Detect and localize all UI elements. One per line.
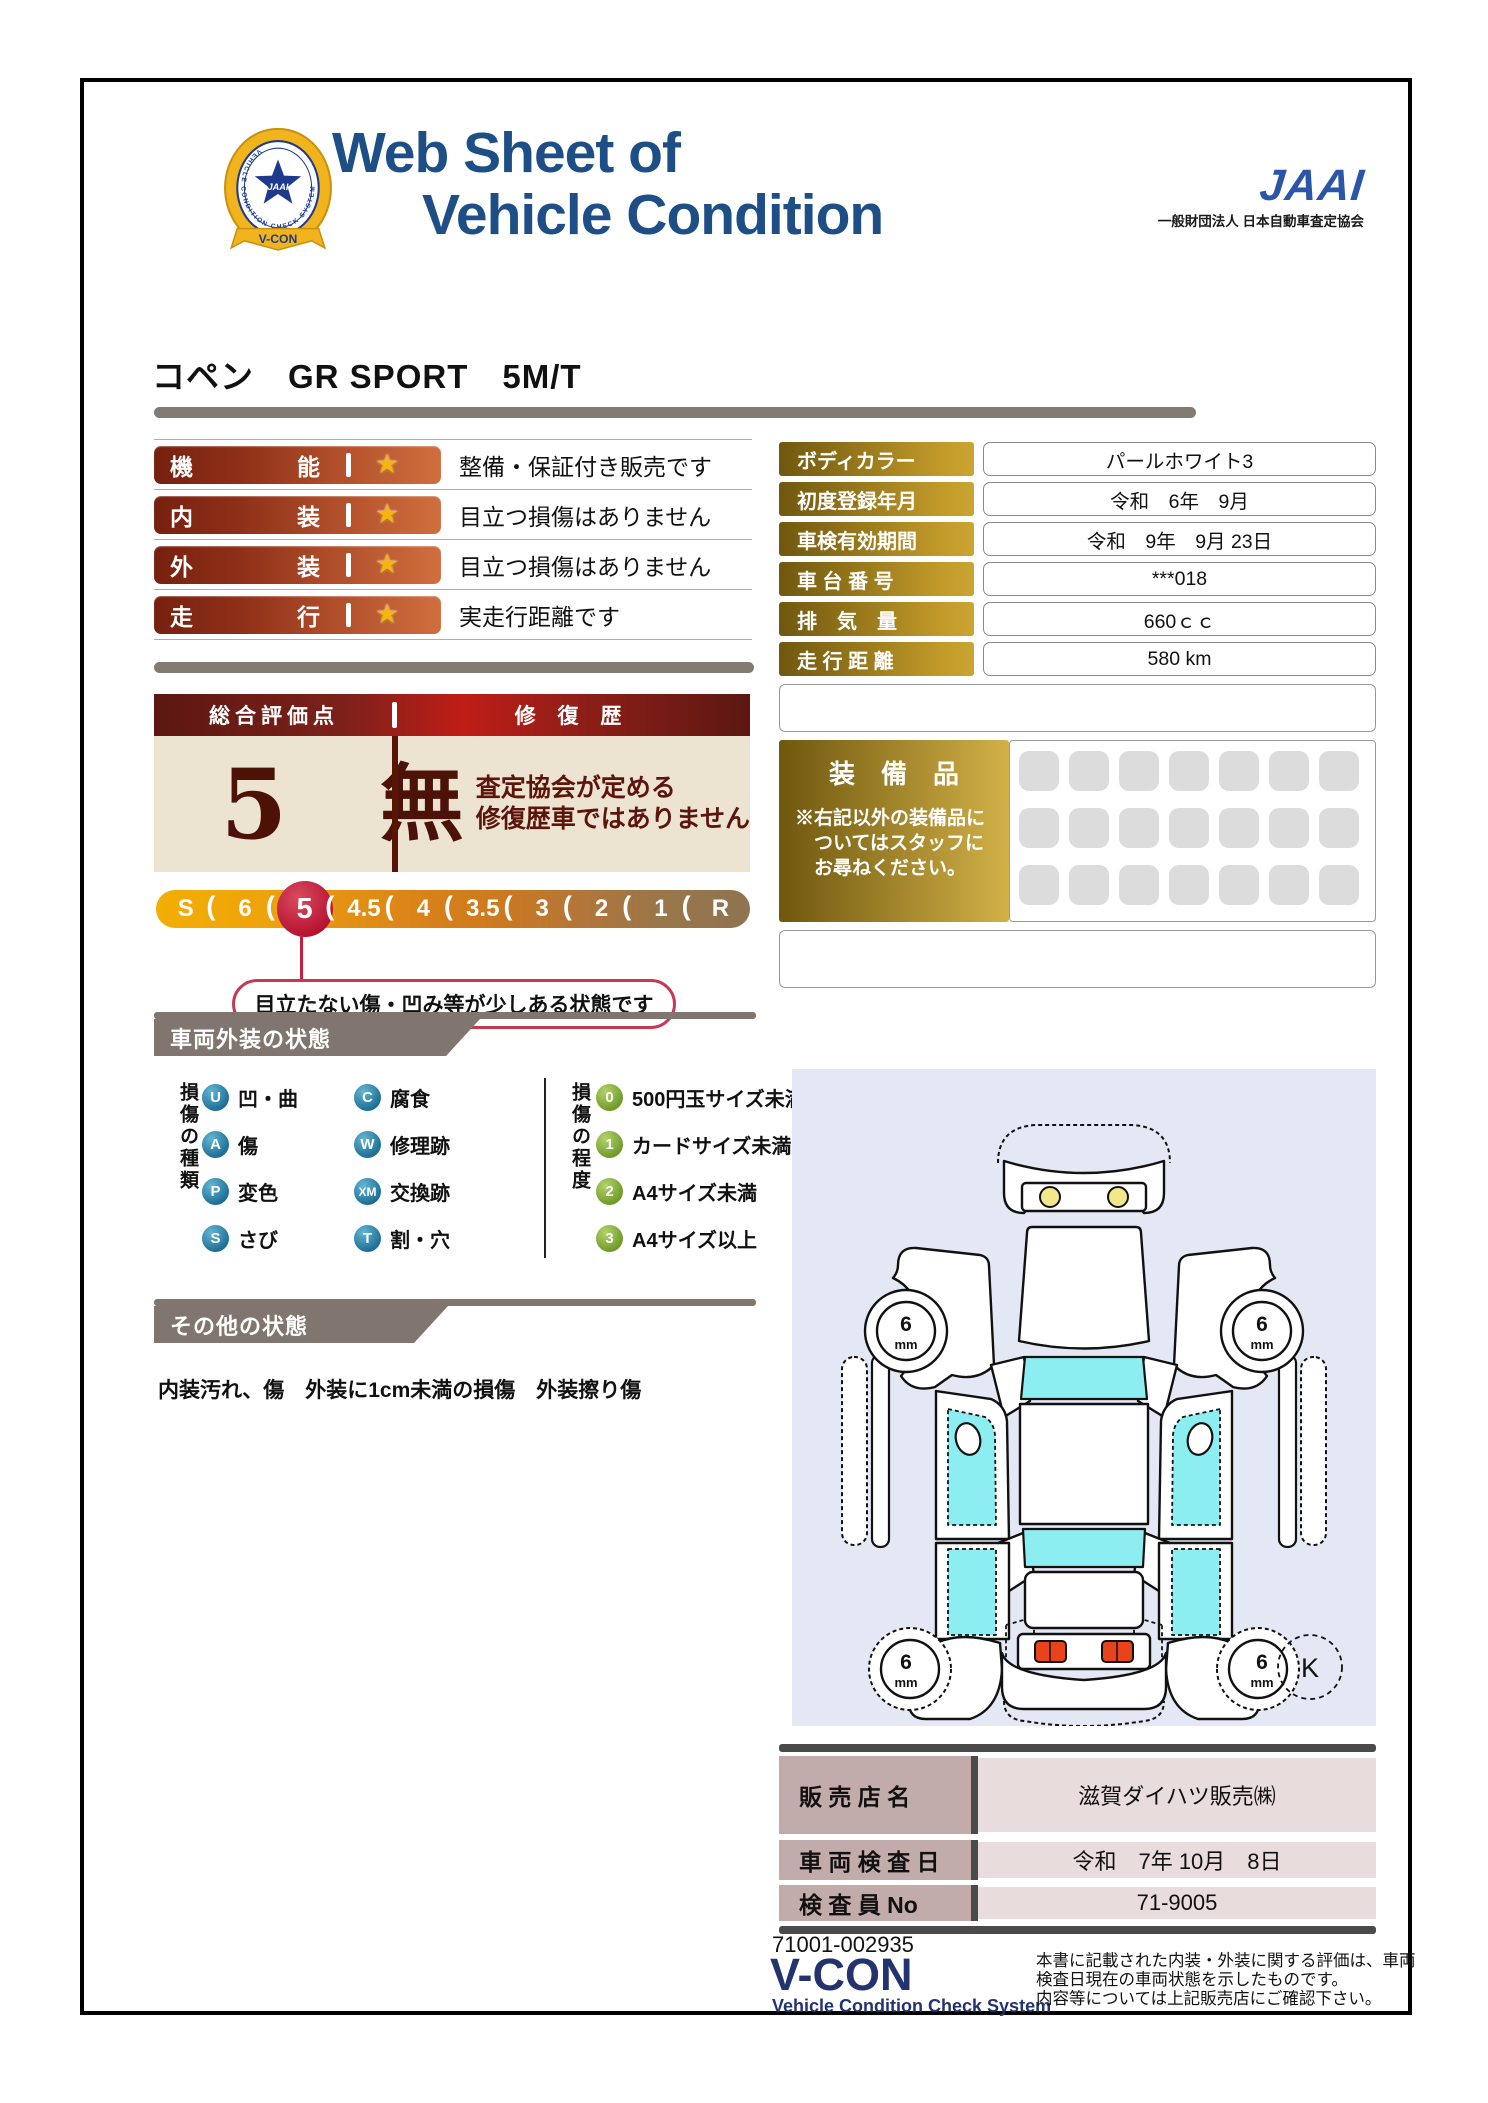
disclaimer-line: 本書に記載された内装・外装に関する評価は、車両 [1036, 1952, 1416, 1971]
info-row: 車 台 番 号***018 [779, 562, 1376, 596]
damage-type-label: 交換跡 [390, 1177, 450, 1206]
headlight-right-icon [1108, 1187, 1128, 1207]
damage-type-label: 変色 [238, 1177, 278, 1206]
dealer-row-value: 令和 7年 10月 8日 [978, 1840, 1376, 1880]
trunk [1025, 1572, 1143, 1628]
equipment-slot [1019, 808, 1059, 848]
rocker-outline [842, 1357, 867, 1545]
tread-value: 6 [1256, 1313, 1268, 1336]
damage-type-code: U [202, 1084, 229, 1111]
scale-callout-connector [300, 935, 303, 981]
vehicle-name: コペン GR SPORT 5M/T [152, 350, 582, 398]
damage-type-item: C腐食 [354, 1074, 536, 1121]
dealer-row-value: 71-9005 [978, 1885, 1376, 1921]
info-value: 令和 6年 9月 [983, 482, 1376, 516]
info-row: 車検有効期間令和 9年 9月 23日 [779, 522, 1376, 556]
dealer-row: 検 査 員 No71-9005 [779, 1885, 1376, 1921]
info-label: 排 気 量 [779, 602, 974, 636]
damage-level-label: カードサイズ未満 [632, 1130, 791, 1159]
info-value: 令和 9年 9月 23日 [983, 522, 1376, 556]
score-scale: S(6(5(4.5(4(3.5(3(2(1(R [156, 890, 750, 928]
damage-level-label: A4サイズ未満 [632, 1177, 757, 1206]
exterior-section-header: 車両外装の状態 [154, 1012, 756, 1056]
damage-type-code: C [354, 1084, 381, 1111]
scale-separator-icon: ( [503, 891, 512, 922]
scale-separator-icon: ( [206, 891, 215, 922]
side-sill [872, 1355, 889, 1547]
star-icon: ★ [375, 599, 399, 630]
rating-label: 走行 [170, 598, 320, 632]
equipment-note-line: ※右記以外の装備品に [795, 806, 985, 831]
rating-label-char: 装 [297, 548, 320, 582]
rating-badge: 機能★ [154, 446, 441, 484]
car-exterior-diagram: 6 mm 6 mm 6 mm 6 mm K [792, 1069, 1376, 1726]
damage-type-code: A [202, 1131, 229, 1158]
rating-label-char: 行 [297, 598, 320, 632]
jaai-logo-block: JAAI 一般財団法人 日本自動車査定協会 [1094, 164, 1364, 230]
jaai-organization-name: 一般財団法人 日本自動車査定協会 [1094, 210, 1364, 230]
dealer-row-divider [971, 1885, 978, 1921]
damage-type-item: W修理跡 [354, 1121, 536, 1168]
repair-history-wrap: 無 査定協会が定める修復歴車ではありません [354, 736, 750, 872]
equipment-slot [1019, 865, 1059, 905]
damage-type-label: 割・穴 [390, 1224, 450, 1253]
dealer-row-value: 滋賀ダイハツ販売㈱ [978, 1756, 1376, 1834]
damage-type-label: 修理跡 [390, 1130, 450, 1159]
scale-segment-label: 2 [595, 895, 608, 923]
scale-separator-icon: ( [682, 891, 691, 922]
equipment-slot [1219, 808, 1259, 848]
body-divider [392, 736, 398, 872]
other-section-header: その他の状態 [154, 1299, 756, 1343]
repair-note-line: 査定協会が定める [476, 773, 750, 804]
damage-type-label: 凹・曲 [238, 1083, 298, 1112]
headlight-left-icon [1040, 1187, 1060, 1207]
dealer-row-label: 車 両 検 査 日 [779, 1840, 971, 1880]
scale-separator-icon: ( [325, 891, 334, 922]
equipment-slot [1069, 808, 1109, 848]
rating-row: 外装★目立つ損傷はありません [154, 540, 752, 590]
equipment-slot [1119, 751, 1159, 791]
equipment-slot [1269, 751, 1309, 791]
vcon-emblem-logo: VEHICLE CONDITION CHECK SYSTEM JAAI V-CO… [222, 126, 334, 262]
scale-segment-label: R [712, 895, 729, 923]
info-row: 排 気 量660ｃｃ [779, 602, 1376, 636]
damage-type-label: 傷 [238, 1130, 258, 1159]
header-divider [392, 702, 397, 728]
vcon-ribbon-label: V-CON [259, 232, 298, 246]
scale-separator-icon: ( [444, 891, 453, 922]
scale-segment-label: 1 [654, 895, 667, 923]
damage-level-label: 500円玉サイズ未満 [632, 1083, 805, 1112]
repair-history-note: 査定協会が定める修復歴車ではありません [476, 773, 750, 835]
equipment-slot [1119, 865, 1159, 905]
tread-unit: mm [1250, 1337, 1273, 1352]
rating-label-char: 内 [170, 498, 193, 532]
equipment-slot [1319, 751, 1359, 791]
rating-label: 内装 [170, 498, 320, 532]
damage-level-item: 0500円玉サイズ未満 [596, 1074, 805, 1121]
rating-list: 機能★整備・保証付き販売です内装★目立つ損傷はありません外装★目立つ損傷はありま… [154, 439, 752, 640]
badge-divider [346, 553, 351, 577]
scale-segment-label: 6 [238, 895, 251, 923]
star-icon: ★ [375, 499, 399, 530]
jaai-logo: JAAI [1257, 164, 1366, 208]
info-row: 初度登録年月令和 6年 9月 [779, 482, 1376, 516]
badge-divider [346, 603, 351, 627]
overall-score-label: 総合評価点 [154, 700, 394, 730]
badge-divider [346, 453, 351, 477]
rating-badge: 外装★ [154, 546, 441, 584]
damage-levels-grid: 0500円玉サイズ未満1カードサイズ未満2A4サイズ未満3A4サイズ以上 [596, 1074, 805, 1262]
other-condition-text: 内装汚れ、傷 外装に1cm未満の損傷 外装擦り傷 [158, 1374, 641, 1404]
corner-mark: K [1301, 1653, 1319, 1683]
scale-segment-label: 3.5 [466, 895, 499, 923]
overall-score-panel: 総合評価点 修 復 歴 5 無 査定協会が定める修復歴車ではありません [154, 694, 750, 872]
equipment-slot [1319, 865, 1359, 905]
vcon-footer-subtitle: Vehicle Condition Check System [772, 1996, 1051, 2017]
vehicle-info-table: ボディカラーパールホワイト3初度登録年月令和 6年 9月車検有効期間令和 9年 … [779, 442, 1376, 682]
damage-level-code: 3 [596, 1225, 623, 1252]
damage-type-item: U凹・曲 [202, 1074, 354, 1121]
star-icon: ★ [375, 449, 399, 480]
disclaimer-line: 検査日現在の車両状態を示したものです。 [1036, 1971, 1416, 1990]
equipment-title: 装 備 品 [779, 754, 1009, 791]
equipment-grid [1019, 751, 1375, 905]
damage-type-item: P変色 [202, 1168, 354, 1215]
rating-badge: 走行★ [154, 596, 441, 634]
equipment-slot [1069, 751, 1109, 791]
damage-levels-label: 損傷の程度 [566, 1082, 593, 1192]
damage-level-label: A4サイズ以上 [632, 1224, 757, 1253]
damage-type-item: XM交換跡 [354, 1168, 536, 1215]
damage-level-code: 1 [596, 1131, 623, 1158]
rating-label: 機能 [170, 448, 320, 482]
scale-segment-label: S [178, 895, 194, 923]
equipment-slot [1069, 865, 1109, 905]
rating-description: 実走行距離です [459, 598, 620, 632]
damage-type-code: P [202, 1178, 229, 1205]
rating-row: 内装★目立つ損傷はありません [154, 490, 752, 540]
tread-value: 6 [900, 1313, 912, 1336]
tread-unit: mm [894, 1337, 917, 1352]
table-top-bar [779, 1744, 1376, 1752]
equipment-slot [1219, 865, 1259, 905]
section-thin-bar [154, 1012, 756, 1019]
dealer-row: 車 両 検 査 日令和 7年 10月 8日 [779, 1840, 1376, 1880]
equipment-note-line: お尋ねください。 [795, 856, 985, 881]
page-title-line1: Web Sheet of [332, 122, 883, 184]
info-label: 初度登録年月 [779, 482, 974, 516]
equipment-grid-panel [1009, 740, 1376, 922]
info-label: 走 行 距 離 [779, 642, 974, 676]
equipment-slot [1269, 808, 1309, 848]
page-title: Web Sheet of Vehicle Condition [332, 122, 883, 246]
roof [1020, 1404, 1148, 1524]
rear-window [1023, 1529, 1145, 1567]
divider-bar [154, 407, 1196, 418]
empty-note-box [779, 930, 1376, 988]
star-icon: ★ [375, 549, 399, 580]
hood [1019, 1227, 1149, 1349]
equipment-slot [1019, 751, 1059, 791]
damage-type-label: 腐食 [390, 1083, 430, 1112]
damage-type-code: W [354, 1131, 381, 1158]
rating-description: 整備・保証付き販売です [459, 448, 712, 482]
equipment-slot [1169, 808, 1209, 848]
divider-bar [154, 662, 754, 673]
damage-type-code: XM [354, 1178, 381, 1205]
info-value: パールホワイト3 [983, 442, 1376, 476]
equipment-slot [1219, 751, 1259, 791]
dealer-row-label: 検 査 員 No [779, 1885, 971, 1921]
rating-label-char: 機 [170, 448, 193, 482]
tread-value: 6 [1256, 1651, 1268, 1674]
badge-divider [346, 503, 351, 527]
overall-score-header: 総合評価点 修 復 歴 [154, 694, 750, 736]
repair-history-label: 修 復 歴 [394, 700, 750, 730]
equipment-slot [1269, 865, 1309, 905]
section-thin-bar [154, 1299, 756, 1306]
rating-row: 機能★整備・保証付き販売です [154, 440, 752, 490]
rating-label-char: 能 [297, 448, 320, 482]
dealer-row-label: 販 売 店 名 [779, 1756, 971, 1834]
rating-badge: 内装★ [154, 496, 441, 534]
info-value: 660ｃｃ [983, 602, 1376, 636]
damage-legend: 損傷の種類 U凹・曲C腐食A傷W修理跡P変色XM交換跡SさびT割・穴 損傷の程度… [154, 1074, 794, 1269]
dealer-table: 販 売 店 名滋賀ダイハツ販売㈱車 両 検 査 日令和 7年 10月 8日検 査… [779, 1744, 1376, 1934]
rating-label-char: 外 [170, 548, 193, 582]
damage-level-item: 3A4サイズ以上 [596, 1215, 805, 1262]
tread-unit: mm [894, 1675, 917, 1690]
rating-label-char: 装 [297, 498, 320, 532]
exterior-section-title: 車両外装の状態 [154, 1019, 446, 1056]
tread-value: 6 [900, 1651, 912, 1674]
equipment-slot [1319, 808, 1359, 848]
other-section-title: その他の状態 [154, 1306, 414, 1343]
legend-divider [544, 1078, 546, 1258]
dealer-row-divider [971, 1840, 978, 1880]
quarter-window [948, 1549, 996, 1635]
damage-type-item: T割・穴 [354, 1215, 536, 1262]
equipment-note: ※右記以外の装備品に ついてはスタッフに お尋ねください。 [795, 806, 985, 881]
disclaimer-line: 内容等については上記販売店にご確認下さい。 [1036, 1990, 1416, 2009]
info-value: ***018 [983, 562, 1376, 596]
rating-description: 目立つ損傷はありません [459, 498, 711, 532]
equipment-note-line: ついてはスタッフに [795, 831, 985, 856]
damage-type-item: Sさび [202, 1215, 354, 1262]
scale-segment: (R [691, 890, 750, 928]
vcon-star-label: JAAI [268, 182, 289, 192]
dealer-row: 販 売 店 名滋賀ダイハツ販売㈱ [779, 1756, 1376, 1834]
tread-unit: mm [1250, 1675, 1273, 1690]
disclaimer-text: 本書に記載された内装・外装に関する評価は、車両検査日現在の車両状態を示したもので… [1036, 1952, 1416, 2009]
vcon-footer-logo: V-CON [770, 1954, 913, 1996]
rating-label-char: 走 [170, 598, 193, 632]
rating-row: 走行★実走行距離です [154, 590, 752, 640]
rating-label: 外装 [170, 548, 320, 582]
damage-type-code: S [202, 1225, 229, 1252]
scale-segment-label: 4.5 [347, 895, 380, 923]
equipment-slot [1119, 808, 1159, 848]
info-label: 車 台 番 号 [779, 562, 974, 596]
page-title-line2: Vehicle Condition [332, 184, 883, 246]
info-row: 走 行 距 離580 km [779, 642, 1376, 676]
scale-separator-icon: ( [385, 891, 394, 922]
empty-note-box [779, 684, 1376, 732]
damage-level-code: 0 [596, 1084, 623, 1111]
scale-segment-label: 3 [535, 895, 548, 923]
selected-score-marker: 5 [277, 881, 333, 937]
equipment-label-panel: 装 備 品 ※右記以外の装備品に ついてはスタッフに お尋ねください。 [779, 740, 1009, 922]
damage-level-item: 2A4サイズ未満 [596, 1168, 805, 1215]
info-label: 車検有効期間 [779, 522, 974, 556]
scale-segment-label: 4 [417, 895, 430, 923]
dealer-row-divider [971, 1756, 978, 1834]
equipment-slot [1169, 865, 1209, 905]
info-row: ボディカラーパールホワイト3 [779, 442, 1376, 476]
info-label: ボディカラー [779, 442, 974, 476]
damage-types-grid: U凹・曲C腐食A傷W修理跡P変色XM交換跡SさびT割・穴 [202, 1074, 536, 1262]
damage-type-label: さび [238, 1224, 278, 1253]
damage-type-code: T [354, 1225, 381, 1252]
condition-sheet: VEHICLE CONDITION CHECK SYSTEM JAAI V-CO… [80, 78, 1412, 2015]
overall-score-value: 5 [154, 736, 354, 872]
equipment-slot [1169, 751, 1209, 791]
scale-separator-icon: ( [563, 891, 572, 922]
rating-description: 目立つ損傷はありません [459, 548, 711, 582]
overall-score-body: 5 無 査定協会が定める修復歴車ではありません [154, 736, 750, 872]
scale-separator-icon: ( [622, 891, 631, 922]
windshield [1021, 1357, 1147, 1399]
damage-level-item: 1カードサイズ未満 [596, 1121, 805, 1168]
info-value: 580 km [983, 642, 1376, 676]
damage-types-label: 損傷の種類 [174, 1082, 201, 1192]
scale-separator-icon: ( [266, 891, 275, 922]
repair-note-line: 修復歴車ではありません [476, 804, 750, 835]
equipment-panel: 装 備 品 ※右記以外の装備品に ついてはスタッフに お尋ねください。 [779, 740, 1376, 922]
damage-level-code: 2 [596, 1178, 623, 1205]
damage-type-item: A傷 [202, 1121, 354, 1168]
